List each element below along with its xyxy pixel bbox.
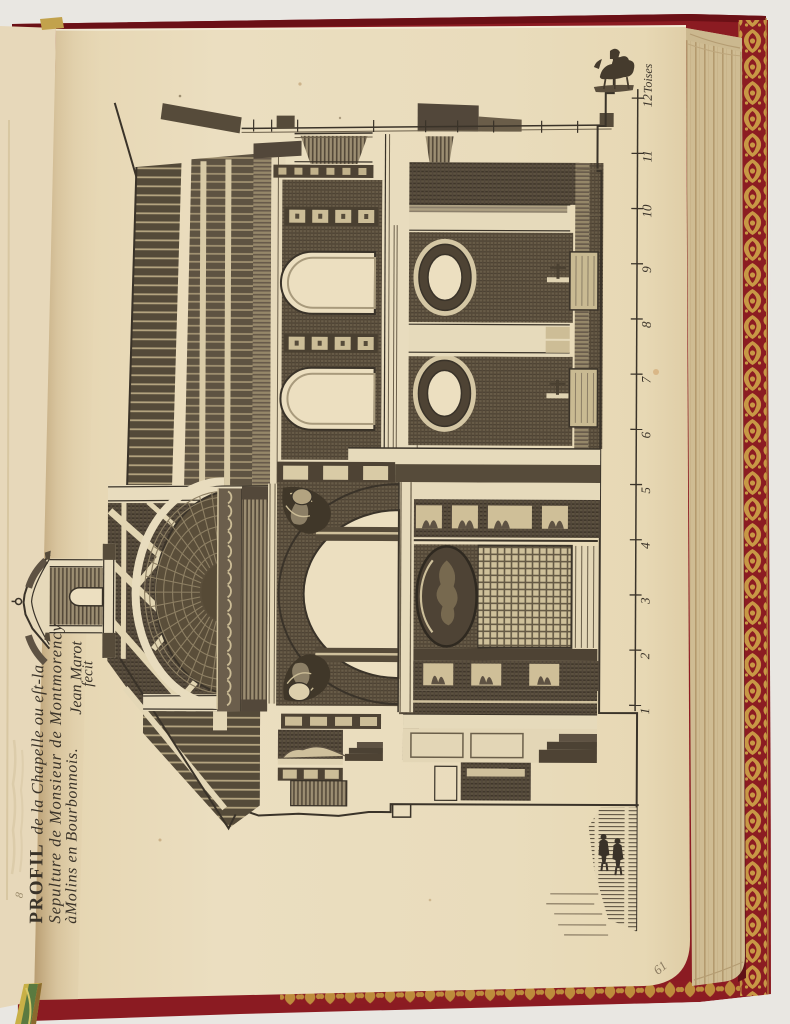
svg-text:10: 10	[639, 204, 654, 218]
svg-text:3: 3	[638, 597, 653, 605]
svg-text:fecit: fecit	[80, 660, 96, 687]
svg-text:1: 1	[637, 708, 652, 715]
svg-text:de la Chapelle ou eſt-la: de la Chapelle ou eſt-la	[28, 664, 48, 834]
svg-text:8: 8	[639, 321, 654, 328]
svg-text:7: 7	[639, 376, 654, 383]
svg-text:12: 12	[640, 94, 655, 108]
svg-text:Toises: Toises	[641, 63, 655, 93]
svg-text:9: 9	[639, 266, 654, 273]
svg-text:6: 6	[638, 431, 653, 438]
svg-text:4: 4	[638, 542, 653, 549]
svg-text:2: 2	[637, 652, 652, 659]
svg-text:5: 5	[638, 487, 653, 494]
svg-text:àMolins en Bourbonnois.: àMolins en Bourbonnois.	[63, 748, 81, 924]
svg-text:11: 11	[639, 150, 654, 162]
